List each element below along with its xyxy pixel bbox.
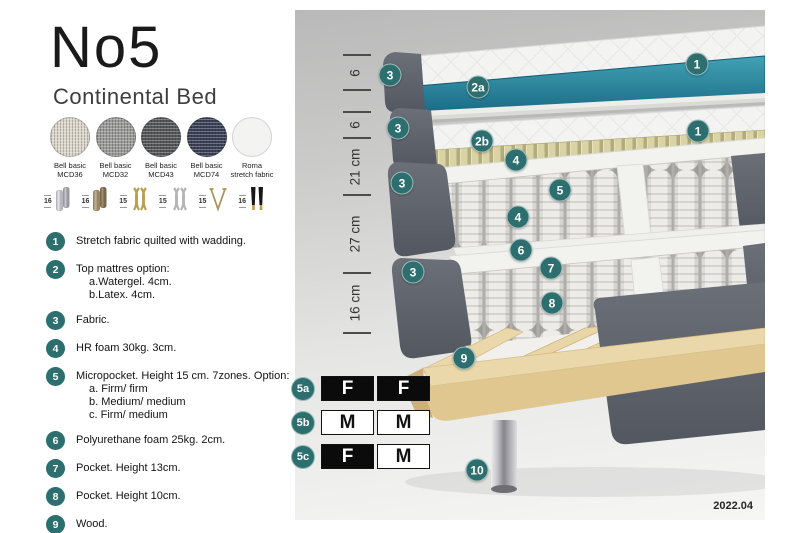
diagram-badge-3: 3: [391, 172, 414, 195]
twisted-gold-leg-icon: [129, 186, 149, 217]
diagram-badge-1: 1: [686, 53, 709, 76]
leg-option: 15: [119, 186, 149, 217]
firmness-row-badge: 5b: [291, 411, 315, 435]
spec-subline: a.Watergel. 4cm.: [76, 276, 172, 289]
fabric-swatch-circle: [50, 117, 90, 157]
fabric-name: Bell basic: [94, 161, 138, 170]
fabric-swatch-circle: [96, 117, 136, 157]
fabric-swatch-circle: [141, 117, 181, 157]
spec-text: HR foam 30kg. 3cm.: [76, 339, 176, 358]
diagram-badge-3: 3: [402, 261, 425, 284]
fabric-swatch-list: Bell basicMCD36Bell basicMCD32Bell basic…: [48, 117, 274, 179]
spec-text: Wood.: [76, 515, 108, 533]
firmness-row-5c: 5cFM: [291, 444, 430, 469]
spec-line: Pocket. Height 10cm.: [76, 490, 181, 503]
fabric-code: stretch fabric: [230, 170, 274, 179]
fabric-swatch-circle: [187, 117, 227, 157]
measure-dash: [120, 195, 127, 196]
leg-option: 15: [199, 186, 229, 217]
spec-number-badge: 8: [46, 487, 65, 506]
firmness-row-badge: 5c: [291, 445, 315, 469]
measure-dash: [44, 207, 51, 208]
product-sheet: No5 Continental Bed Bell basicMCD36Bell …: [0, 0, 800, 533]
spec-text: Pocket. Height 10cm.: [76, 487, 181, 506]
spec-line: Wood.: [76, 518, 108, 531]
spec-text: Pocket. Height 13cm.: [76, 459, 181, 478]
spec-line: Pocket. Height 13cm.: [76, 462, 181, 475]
measure-dash: [239, 195, 246, 196]
firmness-table: 5aFF5bMM5cFM: [291, 376, 430, 478]
spec-list: 1Stretch fabric quilted with wadding.2To…: [46, 232, 302, 533]
spec-item: 9Wood.: [46, 515, 302, 533]
hairpin-gold-leg-icon: [208, 186, 228, 217]
measure-dash: [120, 207, 127, 208]
fabric-code: MCD74: [185, 170, 229, 179]
fabric-code: MCD43: [139, 170, 183, 179]
spec-number-badge: 1: [46, 232, 65, 251]
diagram-badge-3: 3: [387, 117, 410, 140]
measure-dash: [159, 195, 166, 196]
spec-item: 1Stretch fabric quilted with wadding.: [46, 232, 302, 251]
spec-number-badge: 7: [46, 459, 65, 478]
diagram-badge-10: 10: [466, 459, 489, 482]
fabric-name: Bell basic: [139, 161, 183, 170]
leg-height-label: 15: [119, 198, 127, 205]
spec-item: 3Fabric.: [46, 311, 302, 330]
measure-dash: [239, 207, 246, 208]
diagram-badge-5: 5: [549, 179, 572, 202]
spec-text: Top mattres option:a.Watergel. 4cm.b.Lat…: [76, 260, 172, 302]
page-title: No5: [50, 14, 162, 81]
leg-height-measure: 15: [159, 195, 167, 208]
diagram-badge-6: 6: [510, 239, 533, 262]
spec-line: Stretch fabric quilted with wadding.: [76, 235, 246, 248]
spec-subline: c. Firm/ medium: [76, 409, 289, 422]
firmness-cells: FF: [321, 376, 430, 401]
spec-text: Polyurethane foam 25kg. 2cm.: [76, 431, 225, 450]
leg-height-measure: 15: [119, 195, 127, 208]
diagram-badge-2b: 2b: [471, 130, 494, 153]
top-mattress-layer: [383, 26, 765, 123]
spec-text: Fabric.: [76, 311, 110, 330]
spec-text: Micropocket. Height 15 cm. 7zones. Optio…: [76, 367, 289, 422]
firmness-cells: MM: [321, 410, 430, 435]
twisted-silver-leg-icon: [169, 186, 189, 217]
leg-height-label: 16: [82, 198, 90, 205]
diagram-badge-8: 8: [541, 292, 564, 315]
cylinder-bronze-leg-icon: [91, 186, 109, 217]
leg-options-list: 161615151516: [44, 186, 266, 217]
leg-option: 16: [238, 186, 266, 217]
spec-number-badge: 4: [46, 339, 65, 358]
leg-option: 16: [44, 186, 72, 217]
version-label: 2022.04: [673, 500, 753, 512]
firmness-row-badge: 5a: [291, 377, 315, 401]
leg-height-measure: 16: [238, 195, 246, 208]
spec-item: 8Pocket. Height 10cm.: [46, 487, 302, 506]
spec-line: Fabric.: [76, 314, 110, 327]
firmness-cell: M: [377, 410, 430, 435]
spec-item: 2Top mattres option:a.Watergel. 4cm.b.La…: [46, 260, 302, 302]
spec-number-badge: 6: [46, 431, 65, 450]
spec-number-badge: 3: [46, 311, 65, 330]
fabric-swatch: Bell basicMCD32: [94, 117, 138, 179]
spec-item: 5Micropocket. Height 15 cm. 7zones. Opti…: [46, 367, 302, 422]
diagram-badge-1: 1: [687, 120, 710, 143]
spec-number-badge: 2: [46, 260, 65, 279]
leg-height-measure: 16: [82, 195, 90, 208]
spec-subline: b. Medium/ medium: [76, 396, 289, 409]
measure-dash: [82, 195, 89, 196]
spec-item: 7Pocket. Height 13cm.: [46, 459, 302, 478]
firmness-cell: F: [377, 376, 430, 401]
measure-dash: [82, 207, 89, 208]
leg-height-measure: 16: [44, 195, 52, 208]
metal-leg: [491, 420, 517, 490]
fabric-swatch: Bell basicMCD74: [185, 117, 229, 179]
leg-height-label: 15: [199, 198, 207, 205]
leg-height-label: 16: [238, 198, 246, 205]
diagram-badge-3: 3: [379, 64, 402, 87]
leg-option: 16: [82, 186, 110, 217]
spec-line: Polyurethane foam 25kg. 2cm.: [76, 434, 225, 447]
firmness-cell: F: [321, 376, 374, 401]
diagram-badge-7: 7: [540, 257, 563, 280]
diagram-badge-2a: 2a: [467, 76, 490, 99]
firmness-cells: FM: [321, 444, 430, 469]
spec-item: 4HR foam 30kg. 3cm.: [46, 339, 302, 358]
fabric-swatch: Romastretch fabric: [230, 117, 274, 179]
measure-dash: [44, 195, 51, 196]
leg-height-label: 16: [44, 198, 52, 205]
spec-number-badge: 9: [46, 515, 65, 533]
firmness-cell: M: [377, 444, 430, 469]
spec-number-badge: 5: [46, 367, 65, 386]
fabric-swatch-circle: [232, 117, 272, 157]
measure-dash: [159, 207, 166, 208]
cylinder-silver-leg-icon: [54, 186, 72, 217]
measure-dash: [199, 207, 206, 208]
firmness-cell: M: [321, 410, 374, 435]
fabric-swatch: Bell basicMCD43: [139, 117, 183, 179]
fabric-name: Bell basic: [185, 161, 229, 170]
leg-option: 15: [159, 186, 189, 217]
fabric-code: MCD32: [94, 170, 138, 179]
fabric-code: MCD36: [48, 170, 92, 179]
spec-item: 6Polyurethane foam 25kg. 2cm.: [46, 431, 302, 450]
spec-subline: b.Latex. 4cm.: [76, 289, 172, 302]
leg-height-measure: 15: [199, 195, 207, 208]
diagram-badge-9: 9: [453, 347, 476, 370]
spec-line: Top mattres option:: [76, 263, 172, 276]
firmness-row-5b: 5bMM: [291, 410, 430, 435]
diagram-badge-4: 4: [505, 149, 528, 172]
spec-subline: a. Firm/ firm: [76, 383, 289, 396]
firmness-cell: F: [321, 444, 374, 469]
measure-dash: [199, 195, 206, 196]
fabric-name: Roma: [230, 161, 274, 170]
spec-line: Micropocket. Height 15 cm. 7zones. Optio…: [76, 370, 289, 383]
diagram-badge-4: 4: [507, 206, 530, 229]
page-subtitle: Continental Bed: [53, 84, 217, 110]
fabric-swatch: Bell basicMCD36: [48, 117, 92, 179]
fabric-name: Bell basic: [48, 161, 92, 170]
tapered-black-gold-leg-icon: [248, 186, 266, 217]
spec-text: Stretch fabric quilted with wadding.: [76, 232, 246, 251]
leg-height-label: 15: [159, 198, 167, 205]
firmness-row-5a: 5aFF: [291, 376, 430, 401]
spec-line: HR foam 30kg. 3cm.: [76, 342, 176, 355]
diagram-panel: 6621 cm27 cm16 cm 32a132b145346738910 5a…: [295, 10, 765, 520]
